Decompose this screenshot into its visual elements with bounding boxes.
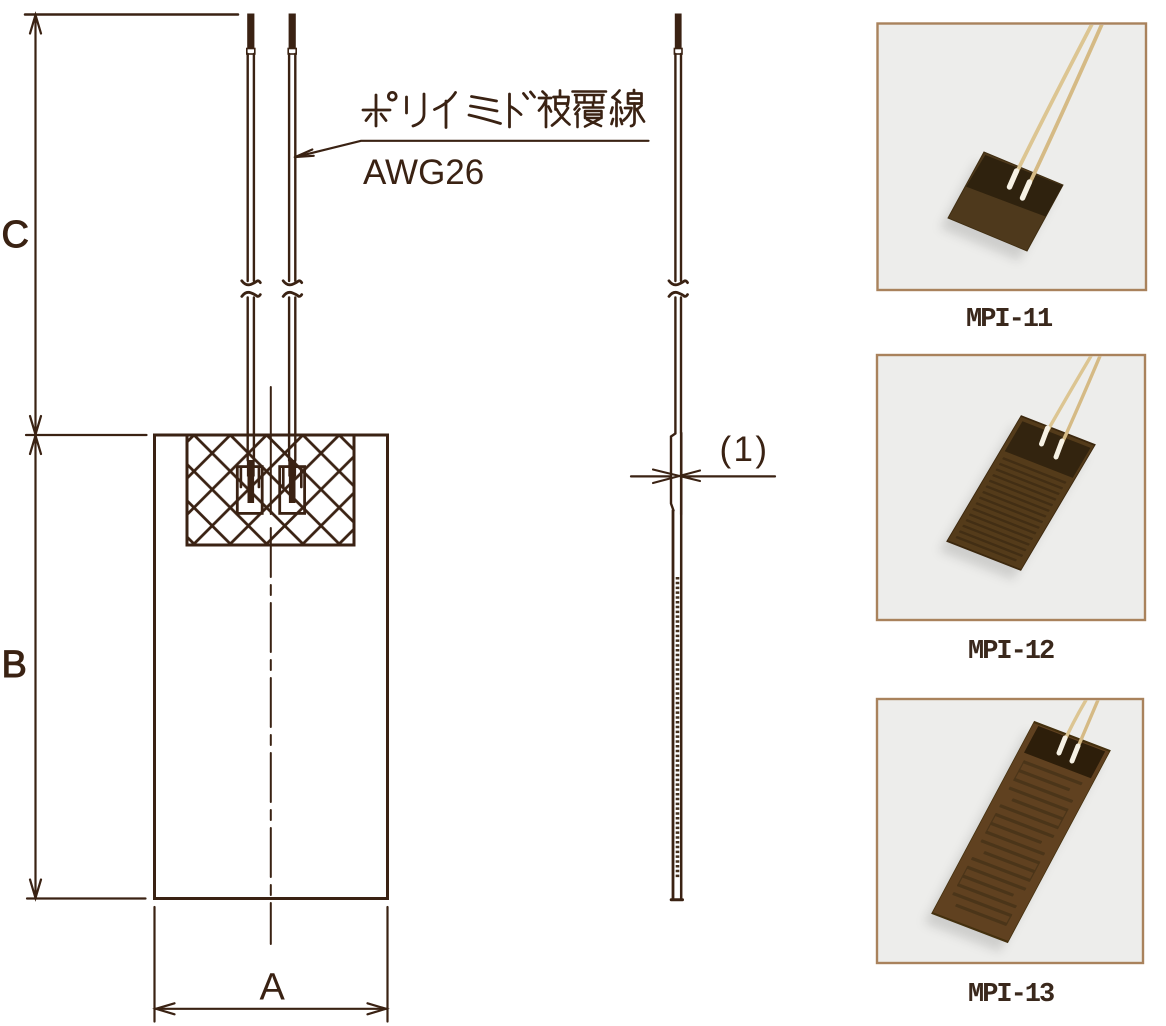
svg-text:A: A [260, 967, 286, 1009]
svg-text:MPI-13: MPI-13 [968, 980, 1054, 1010]
svg-text:C: C [2, 214, 29, 256]
svg-text:B: B [2, 644, 27, 686]
svg-text:(1): (1) [720, 430, 770, 469]
svg-text:AWG26: AWG26 [363, 153, 484, 192]
svg-text:MPI-12: MPI-12 [968, 637, 1054, 667]
svg-text:MPI-11: MPI-11 [966, 305, 1053, 335]
